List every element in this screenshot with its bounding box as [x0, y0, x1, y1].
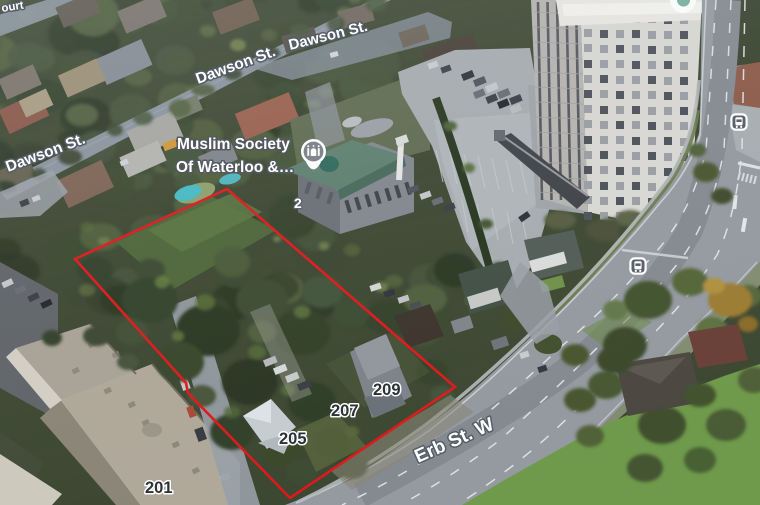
svg-text:Muslim Society: Muslim Society — [177, 136, 290, 153]
svg-text:209: 209 — [373, 381, 401, 399]
svg-text:201: 201 — [145, 479, 173, 497]
svg-text:Of Waterloo &…: Of Waterloo &… — [176, 159, 294, 176]
svg-text:2: 2 — [294, 195, 302, 211]
svg-text:207: 207 — [331, 402, 359, 420]
svg-text:205: 205 — [279, 430, 307, 448]
